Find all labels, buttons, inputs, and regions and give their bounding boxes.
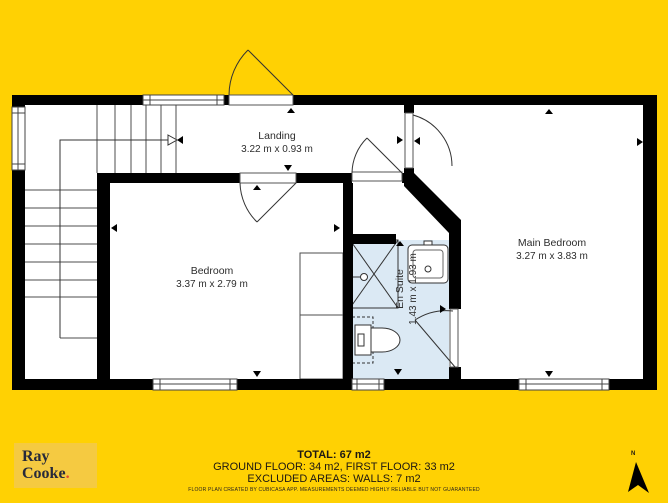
room-dims: 1.43 m x 1.93 m bbox=[407, 253, 421, 325]
room-dims: 3.27 m x 3.83 m bbox=[516, 250, 588, 264]
door-top-exterior bbox=[229, 50, 293, 105]
logo-line1: Ray bbox=[22, 448, 97, 465]
logo-line2: Cooke. bbox=[22, 465, 97, 482]
room-name: Bedroom bbox=[176, 264, 248, 278]
room-dims: 3.22 m x 0.93 m bbox=[241, 143, 313, 157]
room-name: Main Bedroom bbox=[516, 236, 588, 250]
room-label-bedroom: Bedroom 3.37 m x 2.79 m bbox=[176, 264, 248, 292]
wardrobe-icon bbox=[300, 253, 343, 379]
excluded-areas: EXCLUDED AREAS: WALLS: 7 m2 bbox=[0, 473, 668, 485]
total-area: TOTAL: 67 m2 bbox=[0, 449, 668, 461]
room-name: Landing bbox=[241, 129, 313, 143]
ray-cooke-logo: Ray Cooke. bbox=[14, 443, 97, 488]
window-bedroom bbox=[153, 379, 237, 390]
room-dims: 3.37 m x 2.79 m bbox=[176, 278, 248, 292]
window-ensuite bbox=[352, 379, 384, 390]
room-label-ensuite: En Suite 1.43 m x 1.93 m bbox=[393, 253, 421, 325]
room-label-landing: Landing 3.22 m x 0.93 m bbox=[241, 129, 313, 157]
logo-dot: . bbox=[66, 465, 70, 482]
floor-areas: GROUND FLOOR: 34 m2, FIRST FLOOR: 33 m2 bbox=[0, 461, 668, 473]
area-summary: TOTAL: 67 m2 GROUND FLOOR: 34 m2, FIRST … bbox=[0, 449, 668, 494]
disclaimer: FLOOR PLAN CREATED BY CUBICASA APP. MEAS… bbox=[0, 487, 668, 494]
window-main-bedroom bbox=[519, 379, 609, 390]
window-left bbox=[12, 107, 25, 170]
floorplan-page: Landing 3.22 m x 0.93 m Bedroom 3.37 m x… bbox=[0, 0, 668, 501]
window-top bbox=[143, 95, 224, 105]
room-name: En Suite bbox=[393, 253, 407, 325]
north-arrow-icon bbox=[622, 450, 658, 498]
room-label-main-bedroom: Main Bedroom 3.27 m x 3.83 m bbox=[516, 236, 588, 264]
north-compass: N bbox=[622, 450, 658, 498]
north-label: N bbox=[631, 451, 635, 457]
